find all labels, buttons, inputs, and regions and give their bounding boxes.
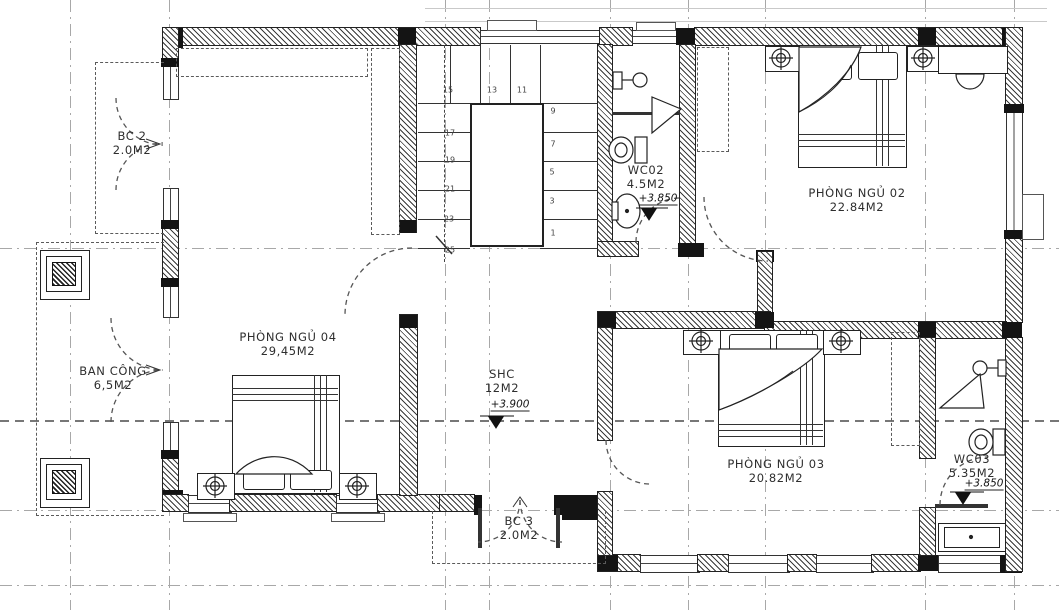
shower-spray-icon bbox=[940, 374, 984, 408]
door-meet-arrow bbox=[513, 497, 527, 507]
corner-block bbox=[676, 28, 695, 45]
sink-icon bbox=[614, 194, 640, 228]
nightstand bbox=[683, 330, 721, 355]
wall-bc3-left bbox=[440, 495, 474, 511]
wc02-area: 4.5M2 bbox=[627, 177, 666, 191]
bed-line bbox=[232, 394, 338, 395]
wall-bedroom02-sw bbox=[758, 252, 772, 312]
corner-block bbox=[918, 555, 938, 571]
wall-wc02-right bbox=[680, 45, 695, 255]
stair-number: 9 bbox=[550, 107, 555, 116]
pillow bbox=[806, 52, 852, 80]
corner-block bbox=[1004, 230, 1024, 239]
bedroom03-area: 20.82M2 bbox=[749, 471, 803, 485]
door-arc-icon bbox=[345, 248, 412, 315]
level-marker-icon bbox=[950, 492, 984, 504]
toilet-tank bbox=[635, 137, 647, 163]
wall-wc03-left bbox=[920, 508, 935, 555]
wc03-door-leaf bbox=[935, 504, 988, 508]
grid-axis-h bbox=[0, 585, 1059, 586]
wc02-window bbox=[632, 30, 680, 44]
shower-icon bbox=[613, 72, 622, 89]
chair-icon bbox=[956, 74, 984, 89]
bed-line bbox=[718, 424, 823, 425]
shc-name: SHC bbox=[489, 367, 515, 381]
pillow bbox=[776, 334, 818, 352]
corner-block bbox=[755, 312, 774, 328]
wall-right bbox=[1006, 28, 1022, 112]
pillow bbox=[858, 52, 898, 80]
nightstand bbox=[907, 46, 942, 72]
column-core bbox=[52, 470, 76, 494]
bc2-name: BC 2 bbox=[117, 129, 146, 143]
stair-number: 23 bbox=[444, 215, 454, 224]
bc3-area: 2.0M2 bbox=[500, 528, 539, 542]
nightstand bbox=[765, 46, 800, 72]
bc3-name: BC 3 bbox=[504, 514, 533, 528]
bed-line bbox=[718, 436, 823, 437]
corner-block bbox=[678, 243, 704, 257]
wc02-label: WC02 4.5M2 bbox=[627, 163, 666, 191]
wall-end-block bbox=[400, 220, 416, 233]
level-marker-icon bbox=[480, 416, 514, 428]
wall-bottom-left bbox=[230, 495, 336, 511]
wall-bottom-right bbox=[872, 555, 920, 571]
stair-number: 13 bbox=[487, 86, 497, 95]
stair-number: 7 bbox=[550, 140, 555, 149]
upper-outline-line bbox=[425, 8, 1047, 9]
corner-block bbox=[1002, 322, 1022, 338]
balcony-name: BAN CÔNG bbox=[79, 364, 146, 378]
shower-head-icon bbox=[633, 73, 647, 87]
wall-wc02-bottom bbox=[598, 242, 638, 256]
stair-number: 19 bbox=[445, 156, 455, 165]
floor-plan: BC 2 2.0M2 BAN CÔNG 6,5M2 BC 3 2.0M2 15 … bbox=[0, 0, 1059, 610]
wardrobe bbox=[371, 48, 400, 235]
stair-number: 17 bbox=[445, 129, 455, 138]
wardrobe bbox=[891, 332, 920, 446]
bedroom02-name: PHÒNG NGỦ 02 bbox=[808, 186, 905, 200]
wardrobe bbox=[176, 48, 368, 77]
stair-number: 25 bbox=[445, 246, 455, 255]
wc03-name: WC03 bbox=[954, 452, 990, 466]
wall-wc03-left bbox=[920, 338, 935, 458]
wall-top-mid bbox=[600, 28, 632, 45]
balcony-window-upper bbox=[163, 283, 179, 318]
wardrobe bbox=[697, 47, 729, 152]
wall-divider-a bbox=[598, 312, 770, 328]
bedroom03-window-3 bbox=[816, 555, 874, 573]
stair-number: 3 bbox=[549, 197, 554, 206]
door-arc-icon bbox=[606, 440, 650, 484]
wall-bottom-left bbox=[163, 495, 188, 511]
wc02-name: WC02 bbox=[628, 163, 664, 177]
wall-left bbox=[163, 453, 178, 495]
shower-spray-icon bbox=[652, 97, 681, 133]
wc03-window bbox=[938, 555, 1002, 573]
shc-label: SHC 12M2 bbox=[485, 367, 519, 395]
stair-number: 15 bbox=[443, 86, 453, 95]
bc3-label: BC 3 2.0M2 bbox=[500, 514, 539, 542]
bed-line bbox=[718, 430, 823, 431]
bed-line bbox=[232, 400, 338, 401]
bc2-label: BC 2 2.0M2 bbox=[113, 129, 152, 157]
stair-number: 11 bbox=[517, 86, 527, 95]
wc03-level: +3.850 bbox=[965, 478, 1004, 491]
stair-well bbox=[470, 103, 544, 247]
bedroom04-area: 29,45M2 bbox=[261, 344, 315, 358]
stair-number: 5 bbox=[549, 168, 554, 177]
level-marker-icon bbox=[636, 208, 668, 220]
bc2-area: 2.0M2 bbox=[113, 143, 152, 157]
shower-icon bbox=[998, 360, 1006, 376]
balcony-label: BAN CÔNG 6,5M2 bbox=[79, 364, 146, 392]
shc-area: 12M2 bbox=[485, 381, 519, 395]
nightstand bbox=[339, 473, 377, 500]
stair-window-sill bbox=[487, 20, 537, 31]
wall-stair-left bbox=[400, 45, 416, 232]
wall-top-right bbox=[695, 28, 1006, 45]
wall-bottom-right bbox=[788, 555, 816, 571]
column-core bbox=[52, 262, 76, 286]
wc03-label: WC03 5.35M2 bbox=[949, 452, 995, 480]
stair-travel-line bbox=[444, 45, 445, 262]
window-sill bbox=[331, 513, 385, 522]
stair-number: 1 bbox=[550, 229, 555, 238]
shc-level: +3.900 bbox=[491, 399, 530, 412]
bedroom03-label: PHÒNG NGỦ 03 20.82M2 bbox=[727, 457, 824, 485]
bedroom02-label: PHÒNG NGỦ 02 22.84M2 bbox=[808, 186, 905, 214]
bedroom04-name: PHÒNG NGỦ 04 bbox=[239, 330, 336, 344]
corner-block bbox=[598, 312, 616, 328]
wall-bedroom03-left bbox=[598, 328, 612, 440]
corner-block bbox=[918, 28, 936, 45]
wall-bottom-right bbox=[698, 555, 728, 571]
wall-left bbox=[163, 222, 178, 285]
vanity-basin bbox=[944, 527, 1000, 548]
wall-wc02-left bbox=[598, 45, 612, 255]
desk bbox=[938, 46, 1008, 74]
pillow bbox=[290, 470, 332, 490]
bedroom03-name: PHÒNG NGỦ 03 bbox=[727, 457, 824, 471]
bed-line bbox=[232, 388, 338, 389]
wall-right bbox=[1006, 338, 1022, 571]
bedroom04-label: PHÒNG NGỦ 04 29,45M2 bbox=[239, 330, 336, 358]
bedroom03-window-2 bbox=[728, 555, 790, 573]
balcony-area: 6,5M2 bbox=[94, 378, 133, 392]
bedroom03-window-1 bbox=[640, 555, 700, 573]
bedroom02-area: 22.84M2 bbox=[830, 200, 884, 214]
shower-head-icon bbox=[973, 361, 987, 375]
window-sill bbox=[183, 513, 237, 522]
corner-block bbox=[1004, 104, 1024, 113]
toilet-icon bbox=[609, 137, 633, 163]
corner-block bbox=[398, 28, 416, 45]
corner-block bbox=[918, 322, 936, 338]
right-ledge bbox=[1022, 194, 1044, 240]
wall-right bbox=[1006, 232, 1022, 322]
wc02-partition bbox=[612, 112, 680, 115]
stair-number: 21 bbox=[445, 185, 455, 194]
pillow bbox=[243, 470, 285, 490]
wall-bottom-left bbox=[378, 495, 440, 511]
nightstand bbox=[197, 473, 235, 500]
wall-bedroom04-right bbox=[400, 315, 417, 495]
wall-end-block bbox=[400, 315, 417, 328]
wc02-level: +3.850 bbox=[639, 193, 678, 206]
bedroom02-window bbox=[1006, 112, 1023, 234]
stair-window bbox=[480, 30, 602, 44]
nightstand bbox=[823, 330, 861, 355]
wc02-window-sill bbox=[636, 22, 676, 31]
pillow bbox=[729, 334, 771, 352]
wall-top-left bbox=[163, 28, 480, 45]
